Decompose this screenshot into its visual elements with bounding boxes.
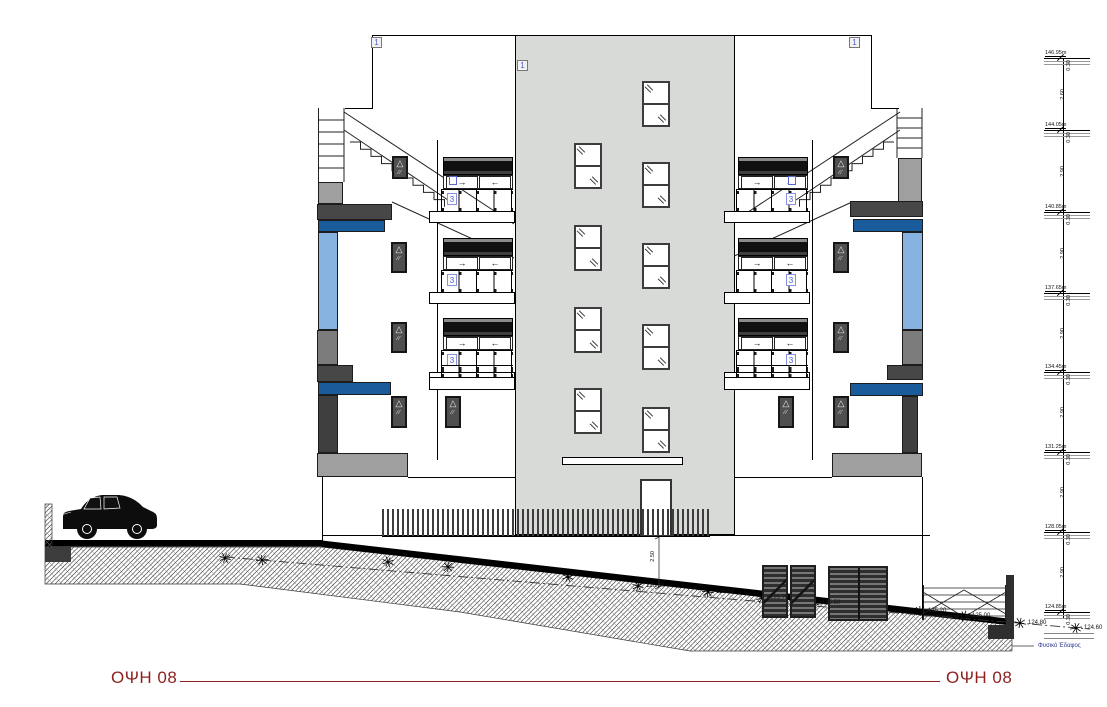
slab-dim-label: 0.30: [1066, 534, 1072, 545]
drawing-title-left: ΟΨΗ 08: [111, 668, 177, 688]
balcony-doors: →←: [443, 336, 513, 350]
level-line: [1044, 212, 1090, 213]
balcony-slab: [724, 211, 810, 223]
slab-dim-label: 0.30: [1066, 295, 1072, 306]
balcony-roller-shutter: [443, 238, 513, 256]
balcony-slab: [429, 377, 515, 390]
balcony-doors: →←: [738, 175, 808, 189]
spot-level-label: 126.00: [716, 589, 734, 595]
facade-block: [318, 220, 385, 232]
spot-level-label: 124.80: [1028, 620, 1046, 626]
balcony-marker: 3: [786, 193, 796, 205]
chain-ground-line-2: [1044, 638, 1094, 639]
glazing-mark: ∕∕: [835, 410, 847, 416]
facade-block: [902, 232, 923, 330]
gap-dim-label: 2.90: [1060, 487, 1066, 498]
balcony-slab: [429, 211, 515, 223]
spot-level-label: 125.00: [972, 613, 990, 619]
balcony-slab: [429, 292, 515, 304]
glazing-mark: ∕∕: [835, 170, 847, 176]
window-pane-bottom: [576, 412, 600, 432]
balcony-marker: 3: [786, 274, 796, 286]
facade-block: [898, 158, 922, 202]
facade-block: [318, 182, 343, 204]
roof-parapet-line: [372, 35, 872, 36]
window-pane-top: [576, 227, 600, 247]
glazing-mark: ∕∕: [447, 410, 459, 416]
door-detail-marker: [788, 176, 796, 185]
gate-narrow-2: [790, 565, 816, 618]
glazing-mark: ∕∕: [835, 256, 847, 262]
window-pane-top: [576, 309, 600, 329]
tower-window: [642, 243, 670, 289]
slab-dim-label: 0.30: [1066, 60, 1072, 71]
outer-wall-left: [322, 477, 323, 541]
slab-dim-label: 0.30: [1066, 132, 1072, 143]
facade-block: [832, 453, 922, 477]
tilt-window: △∕∕: [833, 242, 849, 273]
drawing-title-right: ΟΨΗ 08: [946, 668, 1012, 688]
facade-block: [902, 396, 918, 453]
natural-ground-label: Φυσικό Έδαφος: [1038, 643, 1081, 649]
window-pane-bottom: [644, 267, 668, 287]
car-silhouette: [61, 495, 157, 539]
tilt-window: △∕∕: [392, 156, 408, 179]
tower-window: [574, 307, 602, 353]
door-detail-marker: [449, 176, 457, 185]
tilt-symbol: △: [835, 245, 847, 254]
spot-level-label: 125.20: [928, 608, 946, 614]
ref-marker-roof-right: 1: [849, 37, 860, 48]
window-pane-top: [644, 409, 668, 429]
spot-level-label: 125.50: [822, 600, 840, 606]
balcony-marker: 3: [447, 274, 457, 286]
facade-block: [902, 330, 923, 365]
tilt-window: △∕∕: [391, 322, 407, 353]
slab-dim-label: 0.30: [1066, 214, 1072, 225]
glazing-mark: ∕∕: [393, 336, 405, 342]
glazing-mark: ∕∕: [394, 170, 406, 176]
window-pane-top: [576, 145, 600, 165]
tilt-symbol: △: [393, 399, 405, 408]
balcony-railing: [441, 365, 513, 377]
left-boundary-wall: [45, 504, 52, 547]
window-pane-top: [644, 83, 668, 103]
tilt-symbol: △: [835, 399, 847, 408]
balcony-doors: →←: [443, 256, 513, 270]
balcony-railing: [736, 189, 808, 211]
window-pane-bottom: [644, 186, 668, 206]
window-pane-bottom: [644, 431, 668, 451]
tilt-symbol: △: [835, 159, 847, 168]
facade-block: [317, 330, 338, 365]
wing-recess-edge-right: [812, 140, 813, 460]
retaining-wall-footing: [988, 625, 1014, 639]
balcony-door-left: →: [741, 176, 773, 189]
level-line: [1044, 293, 1090, 294]
tilt-symbol: △: [835, 325, 847, 334]
glazing-mark: ∕∕: [393, 256, 405, 262]
tilt-symbol: △: [447, 399, 459, 408]
facade-block: [850, 383, 923, 396]
facade-block: [317, 453, 408, 477]
gap-dim-label: 2.90: [1060, 407, 1066, 418]
balcony-door-left: →: [741, 257, 773, 270]
balcony-door-left: →: [446, 257, 478, 270]
window-pane-top: [644, 164, 668, 184]
level-line: [1044, 130, 1090, 131]
tilt-window: △∕∕: [445, 396, 461, 428]
balcony-door-right: ←: [479, 257, 511, 270]
slab-dim-label: 0.30: [1066, 454, 1072, 465]
tower-window: [574, 388, 602, 434]
window-pane-top: [644, 326, 668, 346]
glazing-mark: ∕∕: [393, 410, 405, 416]
level-line: [1044, 612, 1090, 613]
wing-base-line-right: [735, 477, 832, 478]
balcony-door-left: →: [446, 337, 478, 350]
title-rule: [180, 681, 940, 682]
balcony-slab: [724, 292, 810, 304]
roof-step-right: [871, 108, 899, 109]
tower-window: [642, 324, 670, 370]
level-line: [1044, 452, 1090, 453]
balcony-roller-shutter: [738, 318, 808, 336]
tilt-symbol: △: [394, 159, 406, 168]
balcony-railing: [736, 365, 808, 377]
balcony-door-right: ←: [479, 176, 511, 189]
tower-window: [574, 143, 602, 189]
balcony-door-right: ←: [774, 257, 806, 270]
tilt-symbol: △: [393, 245, 405, 254]
ref-marker-tower: 1: [517, 60, 528, 71]
facade-block: [853, 219, 923, 232]
window-pane-bottom: [576, 331, 600, 351]
facade-block: [887, 365, 923, 380]
balcony-doors: →←: [738, 336, 808, 350]
balcony-roller-shutter: [738, 238, 808, 256]
level-line: [1044, 58, 1090, 59]
window-pane-top: [576, 390, 600, 410]
elevation-drawing-canvas: △∕∕△∕∕△∕∕△∕∕△∕∕△∕∕△∕∕△∕∕△∕∕△∕∕ →←3→←3→←3…: [0, 0, 1107, 707]
chain-ground-line-1: [1044, 633, 1094, 634]
level-line: [1044, 372, 1090, 373]
gate-narrow-1: [762, 565, 788, 618]
window-pane-bottom: [644, 105, 668, 125]
facade-block: [318, 382, 391, 395]
tower-window: [574, 225, 602, 271]
facade-block: [317, 204, 392, 220]
window-pane-top: [644, 245, 668, 265]
road-flat: [45, 540, 322, 547]
balcony-door-left: →: [741, 337, 773, 350]
gap-dim-label: 2.90: [1060, 567, 1066, 578]
gap-dim-label: 2.90: [1060, 166, 1066, 177]
tower-window: [642, 81, 670, 127]
slab-dim-label: 0.30: [1066, 374, 1072, 385]
spot-level-label: 126.20: [646, 583, 664, 589]
facade-block: [317, 365, 353, 382]
tilt-symbol: △: [780, 399, 792, 408]
gap-dim-label: 2.90: [1060, 248, 1066, 259]
level-line: [1044, 532, 1090, 533]
window-pane-bottom: [576, 249, 600, 269]
balcony-door-right: ←: [479, 337, 511, 350]
balcony-roller-shutter: [443, 157, 513, 175]
balcony-door-right: ←: [774, 337, 806, 350]
tilt-window: △∕∕: [833, 156, 849, 179]
gap-dim-label: 2.60: [1060, 89, 1066, 100]
facade-block: [318, 232, 338, 330]
tower-window: [642, 162, 670, 208]
window-pane-bottom: [576, 167, 600, 187]
ramp-dim-label: 2.50: [650, 551, 656, 562]
window-pane-bottom: [644, 348, 668, 368]
slat-fence: [382, 509, 710, 537]
gate-centre-post: [858, 568, 860, 619]
spot-level-label: 124.60: [1084, 625, 1102, 631]
tower-window: [642, 407, 670, 453]
tilt-window: △∕∕: [833, 322, 849, 353]
left-wall-footing: [45, 547, 71, 562]
slab-dim-label: 0.30: [1066, 614, 1072, 625]
roof-edge-right: [871, 35, 872, 108]
tilt-window: △∕∕: [833, 396, 849, 428]
glazing-mark: ∕∕: [835, 336, 847, 342]
outer-wall-right: [922, 477, 923, 618]
gate-double: [828, 566, 888, 621]
tilt-window: △∕∕: [391, 242, 407, 273]
facade-block: [850, 201, 923, 217]
balcony-slab: [724, 377, 810, 390]
entrance-canopy: [562, 457, 683, 465]
roof-step-left: [345, 108, 373, 109]
gap-dim-label: 2.90: [1060, 328, 1066, 339]
balcony-railing: [736, 270, 808, 292]
balcony-doors: →←: [738, 256, 808, 270]
balcony-roller-shutter: [738, 157, 808, 175]
tilt-window: △∕∕: [778, 396, 794, 428]
balcony-roller-shutter: [443, 318, 513, 336]
balcony-marker: 3: [447, 193, 457, 205]
glazing-mark: ∕∕: [780, 410, 792, 416]
facade-block: [318, 395, 338, 453]
tilt-window: △∕∕: [391, 396, 407, 428]
tilt-symbol: △: [393, 325, 405, 334]
wing-base-line-left: [408, 477, 515, 478]
ref-marker-roof-left: 1: [371, 37, 382, 48]
spot-level-label: 125.70: [770, 595, 788, 601]
